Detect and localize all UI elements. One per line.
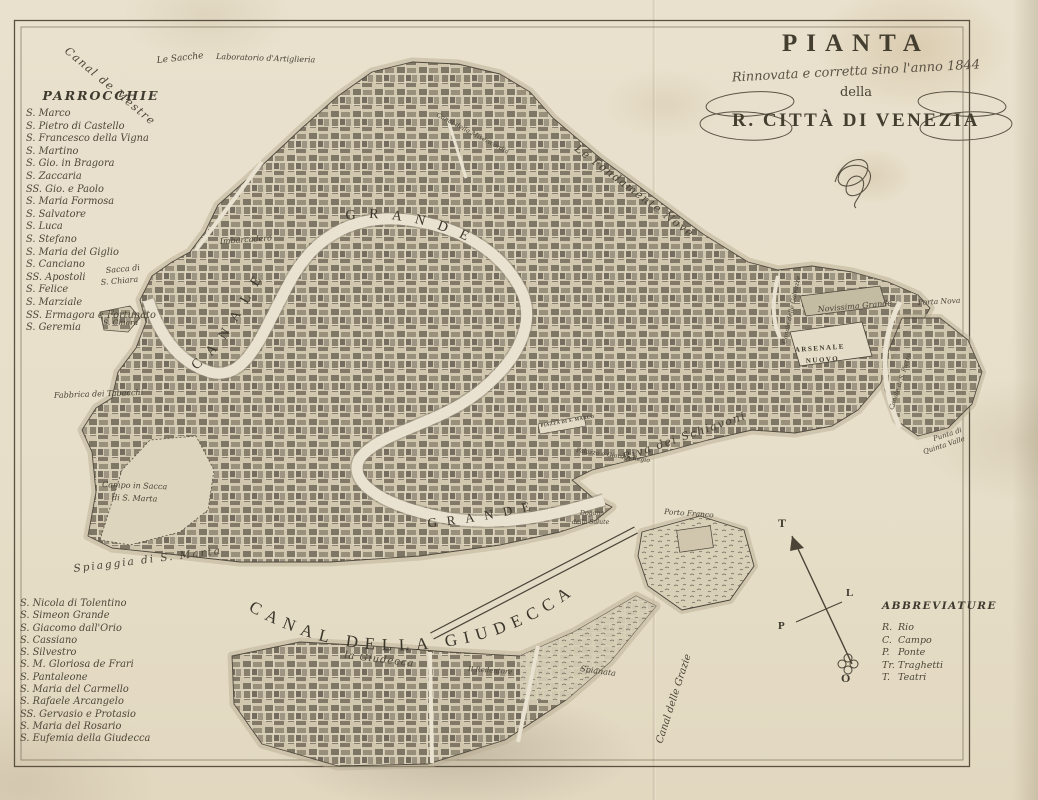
parish-item: S. Felice: [26, 284, 176, 297]
label-dogana-line1: Dogana: [579, 510, 604, 517]
compass-letter-east: L: [846, 587, 853, 599]
parish-item: S. Giacomo dall'Orio: [20, 623, 195, 635]
island-s-giorgio: [638, 516, 754, 610]
map-title-della: della: [698, 85, 1014, 100]
parish-item: S. Eufemia della Giudecca: [20, 733, 195, 745]
abbreviation-item: T.Teatri: [882, 672, 992, 685]
parish-item: SS. Gio. e Paolo: [26, 184, 176, 197]
compass-rose: [790, 536, 858, 674]
label-le-sacche: Le Sacche: [155, 51, 204, 66]
label-campo-sacca-line2: di S. Marta: [112, 493, 158, 504]
parish-item: S. Silvestro: [20, 647, 195, 659]
parish-list-upper: S. MarcoS. Pietro di CastelloS. Francesc…: [26, 108, 176, 335]
parish-item: S. Martino: [26, 146, 176, 159]
map-sheet: CANALE GRANDE GRANDE CANAL DELLA GIUDECC…: [0, 0, 1038, 800]
abbreviation-item: C.Campo: [882, 635, 992, 648]
map-city-title: R. CITTÀ DI VENEZIA: [698, 104, 1014, 138]
abbreviations-panel: ABBREVIATURE R.RioC.CampoP.PonteTr.Tragh…: [882, 600, 992, 685]
parish-item: S. Canciano: [26, 259, 176, 272]
parish-item: S. Cassiano: [20, 635, 195, 647]
abbreviations-heading: ABBREVIATURE: [882, 600, 992, 612]
map-title: PIANTA: [698, 30, 1014, 58]
parish-item: SS. Ermagora e Fortunato: [26, 310, 176, 323]
parish-item: S. Maria del Rosario: [20, 721, 195, 733]
parish-item: SS. Apostoli: [26, 272, 176, 285]
parish-list-panel: PARROCCHIE S. MarcoS. Pietro di Castello…: [26, 88, 176, 335]
parish-list-heading: PARROCCHIE: [26, 88, 176, 103]
abbreviation-item: R.Rio: [882, 622, 992, 635]
parish-list-lower: S. Nicola di TolentinoS. Simeon GrandeS.…: [20, 598, 195, 746]
parish-item: S. Geremia: [26, 322, 176, 335]
compass-letter-north: T: [778, 516, 786, 530]
parish-item: S. Maria Formosa: [26, 196, 176, 209]
parish-item: S. M. Gloriosa de Frari: [20, 659, 195, 671]
parish-item: S. Maria del Giglio: [26, 247, 176, 260]
compass-letter-west: P: [778, 620, 785, 632]
parish-item: S. Rafaele Arcangelo: [20, 696, 195, 708]
parish-item: S. Marco: [26, 108, 176, 121]
abbreviations-list: R.RioC.CampoP.PonteTr.TraghettiT.Teatri: [882, 622, 992, 685]
parish-item: S. Marziale: [26, 297, 176, 310]
parish-item: S. Zaccaria: [26, 171, 176, 184]
parish-item: SS. Gervasio e Protasio: [20, 709, 195, 721]
parish-item: S. Salvatore: [26, 209, 176, 222]
parish-item: S. Luca: [26, 221, 176, 234]
parish-item: S. Stefano: [26, 234, 176, 247]
label-canal-grazie: Canal delle Grazie: [654, 653, 693, 745]
parish-item: S. Maria del Carmello: [20, 684, 195, 696]
parish-item: S. Francesco della Vigna: [26, 133, 176, 146]
abbreviation-item: P.Ponte: [882, 647, 992, 660]
compass-letter-south: O: [841, 671, 850, 685]
parish-item: S. Pantaleone: [20, 672, 195, 684]
parish-item: S. Simeon Grande: [20, 610, 195, 622]
parish-item: S. Nicola di Tolentino: [20, 598, 195, 610]
abbreviation-item: Tr.Traghetti: [882, 660, 992, 673]
calligraphic-monogram-icon: [821, 148, 891, 212]
label-porta-nova: Porta Nova: [917, 296, 961, 307]
title-block: PIANTA Rinnovata e corretta sino l'anno …: [698, 30, 1014, 216]
map-subtitle: Rinnovata e corretta sino l'anno 1844: [698, 56, 1014, 88]
label-laboratorio-artiglieria: Laboratorio d'Artiglieria: [215, 52, 316, 64]
label-porto-franco: Porto Franco: [663, 507, 715, 520]
compass-needle-icon: [790, 536, 804, 551]
label-dogana-line2: della Salute: [572, 519, 610, 526]
parish-item: S. Pietro di Castello: [26, 121, 176, 134]
parish-item: S. Gio. in Bragora: [26, 158, 176, 171]
